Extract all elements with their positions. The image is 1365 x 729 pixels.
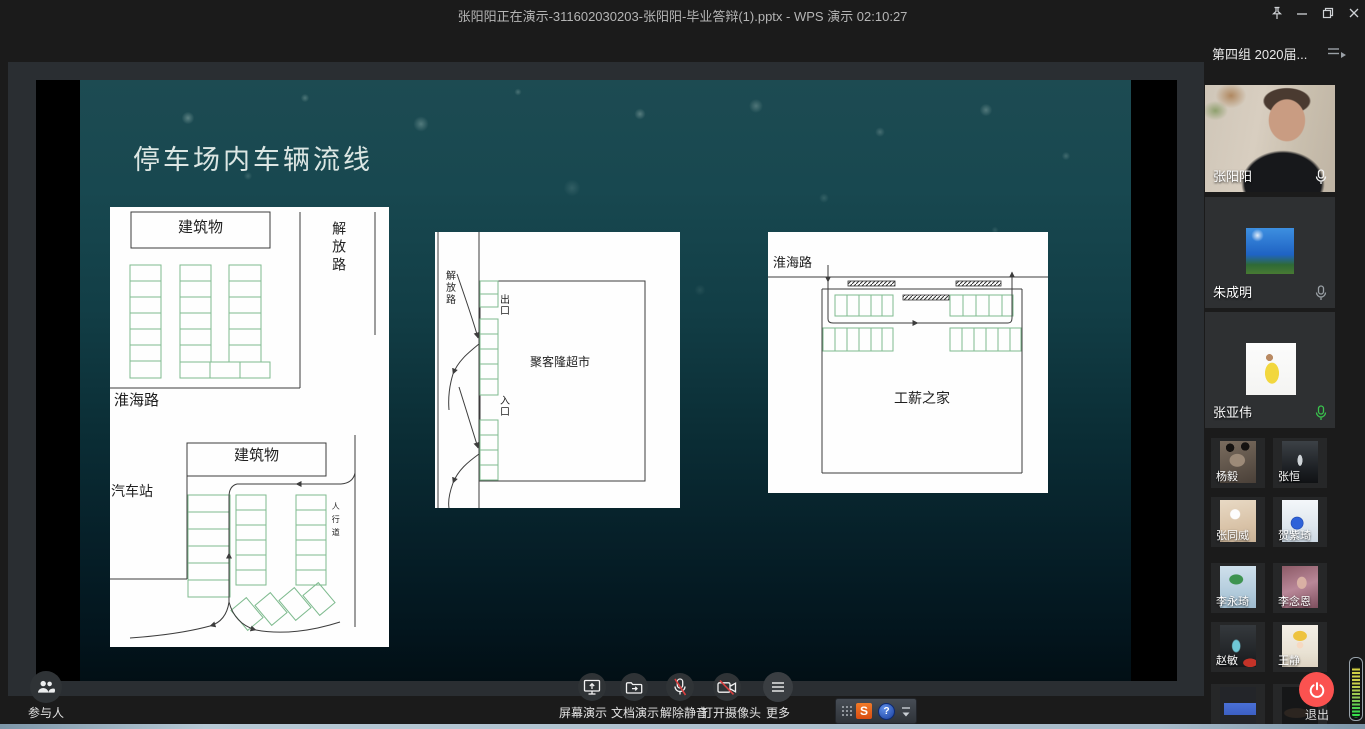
- label-building: 建筑物: [131, 220, 270, 237]
- unmute-button[interactable]: [666, 673, 694, 701]
- participant-name: 贺紫琦: [1278, 527, 1311, 543]
- camera-off-icon: [717, 680, 737, 695]
- label-jiefang-road: 解放路: [329, 221, 345, 275]
- slide-canvas: 停车场内车辆流线: [80, 80, 1131, 681]
- titlebar: 张阳阳正在演示-311602030203-张阳阳-毕业答辩(1).pptx - …: [0, 0, 1365, 27]
- shared-screen: 停车场内车辆流线: [36, 80, 1177, 681]
- participant-name: 李永琦: [1216, 593, 1249, 609]
- label-building-2: 建筑物: [187, 448, 326, 465]
- taskbar-edge: [0, 724, 1365, 729]
- diagram-1-drawing: [110, 207, 389, 647]
- participant-tile[interactable]: 赵敏: [1211, 622, 1265, 672]
- doc-share-label: 文档演示: [611, 704, 659, 721]
- slide-title: 停车场内车辆流线: [133, 138, 373, 177]
- label-entrance: 入口: [497, 395, 509, 417]
- participants-label: 参与人: [28, 704, 64, 721]
- screen-share-icon: [583, 679, 601, 696]
- label-bus-station: 汽车站: [111, 485, 153, 501]
- label-workers-home: 工薪之家: [822, 392, 1022, 408]
- wps-sign-icon[interactable]: S: [856, 703, 872, 719]
- participant-name: 张亚伟: [1213, 402, 1252, 421]
- mic-active-icon: [1315, 405, 1327, 421]
- exit-label: 退出: [1298, 706, 1336, 723]
- participant-tile[interactable]: 张同威: [1211, 497, 1265, 547]
- mic-muted-icon: [673, 678, 687, 696]
- mic-icon: [1315, 285, 1327, 301]
- more-label: 更多: [766, 704, 790, 721]
- participant-tile[interactable]: 李永琦: [1211, 563, 1265, 613]
- camera-label: 打开摄像头: [701, 704, 761, 721]
- participants-button[interactable]: [30, 671, 62, 703]
- diagram-3-drawing: [768, 232, 1048, 493]
- participant-tile[interactable]: 张亚伟: [1205, 312, 1335, 428]
- participant-list-icon[interactable]: [1327, 46, 1347, 61]
- diagram-parking-lot-2: 解放路 出口 入口 聚客隆超市: [435, 232, 680, 508]
- mic-icon: [1315, 169, 1327, 185]
- grid-handle-icon[interactable]: [841, 705, 853, 717]
- dropdown-icon[interactable]: [901, 711, 911, 718]
- participant-tile[interactable]: 杨毅: [1211, 438, 1265, 488]
- doc-share-icon: [625, 680, 643, 695]
- participant-name: 赵敏: [1216, 652, 1238, 668]
- screen-share-label: 屏幕演示: [559, 704, 607, 721]
- participant-name: 张同威: [1216, 527, 1249, 543]
- exit-button[interactable]: [1299, 672, 1334, 707]
- help-icon[interactable]: ?: [878, 703, 895, 720]
- avatar: [1220, 687, 1256, 729]
- participant-tile[interactable]: 贺紫琦: [1273, 497, 1327, 547]
- diagram-parking-lot-1: 建筑物 解放路 淮海路 建筑物 汽车站 人行道: [110, 207, 389, 647]
- presentation-stage: 停车场内车辆流线: [8, 62, 1204, 696]
- participant-tile[interactable]: [1211, 684, 1265, 729]
- participant-tile[interactable]: 李念恩: [1273, 563, 1327, 613]
- screen-share-button[interactable]: [578, 673, 606, 701]
- label-exit: 出口: [497, 294, 509, 316]
- participant-tile[interactable]: 朱成明: [1205, 197, 1335, 308]
- participant-tile[interactable]: 王静: [1273, 622, 1327, 672]
- window-title: 张阳阳正在演示-311602030203-张阳阳-毕业答辩(1).pptx - …: [0, 6, 1365, 25]
- participant-name: 张阳阳: [1213, 166, 1252, 185]
- more-button[interactable]: [763, 672, 793, 702]
- more-icon: [771, 681, 785, 693]
- participant-name: 张恒: [1278, 468, 1300, 484]
- participant-name: 杨毅: [1216, 468, 1238, 484]
- label-huaihai-road: 淮海路: [114, 393, 159, 410]
- label-huaihai-road-2: 淮海路: [773, 256, 812, 271]
- participant-name: 王静: [1278, 652, 1300, 668]
- camera-button[interactable]: [713, 673, 741, 701]
- people-icon: [36, 680, 56, 694]
- participant-name: 李念恩: [1278, 593, 1311, 609]
- power-icon: [1308, 681, 1326, 699]
- participants-sidebar: 第四组 2020届... 张阳阳 朱成明 张亚伟 杨毅: [1204, 0, 1365, 729]
- volume-level: [1352, 660, 1360, 718]
- participant-name: 朱成明: [1213, 282, 1252, 301]
- diagram-parking-lot-3: 淮海路 工薪之家: [768, 232, 1048, 493]
- group-title: 第四组 2020届...: [1212, 44, 1307, 63]
- participant-tile-video[interactable]: 张阳阳: [1205, 85, 1335, 192]
- label-supermarket: 聚客隆超市: [480, 356, 640, 370]
- doc-share-button[interactable]: [620, 673, 648, 701]
- avatar: [1246, 228, 1294, 274]
- avatar: [1246, 343, 1296, 395]
- app-window: 张阳阳正在演示-311602030203-张阳阳-毕业答辩(1).pptx - …: [0, 0, 1365, 729]
- participant-tile[interactable]: 张恒: [1273, 438, 1327, 488]
- diagram-2-drawing: [435, 232, 680, 508]
- label-jiefang-road-2: 解放路: [443, 270, 455, 306]
- label-sidewalk: 人行道: [331, 502, 340, 541]
- volume-meter: [1349, 657, 1363, 721]
- wps-floating-toolbar[interactable]: S ?: [835, 698, 917, 724]
